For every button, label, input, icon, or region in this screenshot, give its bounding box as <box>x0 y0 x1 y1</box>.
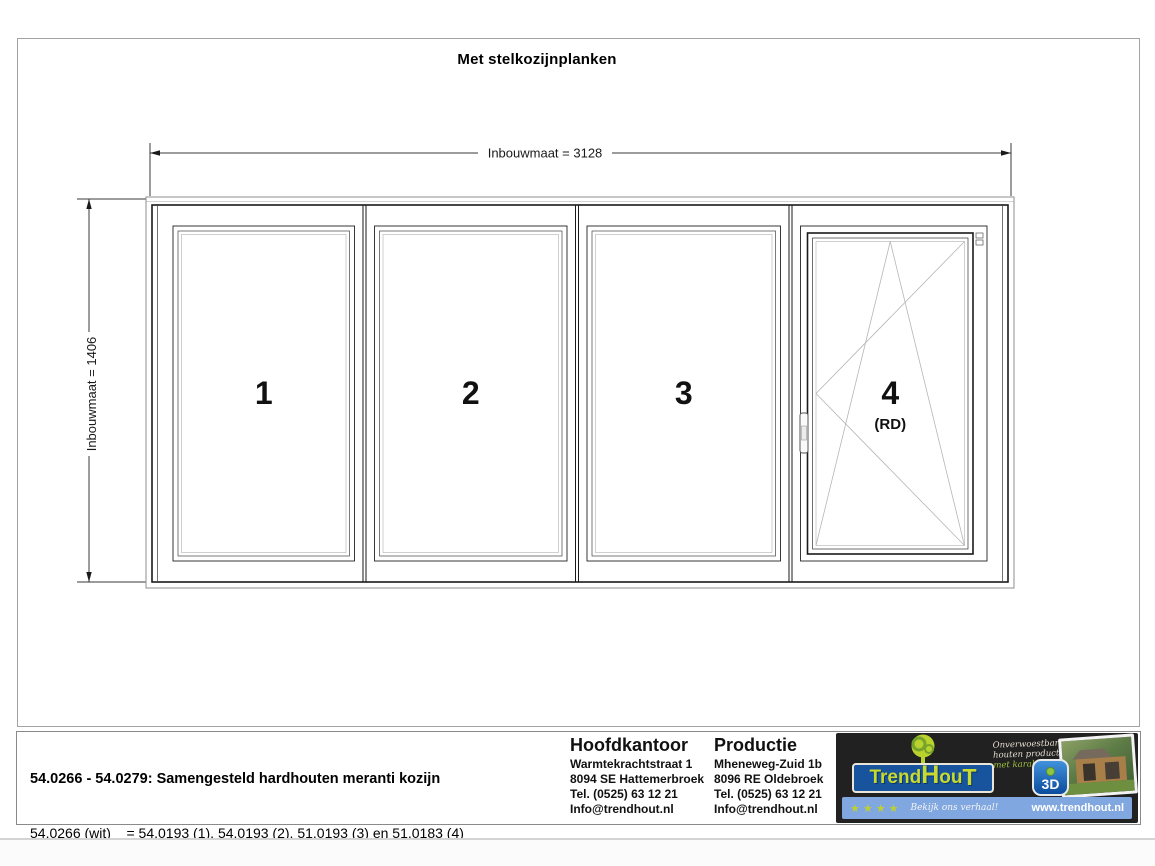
productie-email: Info@trendhout.nl <box>714 802 823 817</box>
below-page-area <box>0 840 1155 866</box>
hoofdkantoor-street: Warmtekrachtstraat 1 <box>570 757 704 772</box>
logo-text-ou: ou <box>939 767 962 789</box>
hoofdkantoor-title: Hoofdkantoor <box>570 735 704 756</box>
dimension-width-label: Inbouwmaat = 3128 <box>488 146 603 161</box>
panel-2-number: 2 <box>462 375 480 411</box>
brand-bottom-bar: ★★★★ Bekijk ons verhaal! www.trendhout.n… <box>842 797 1132 819</box>
dimension-height-label: Inbouwmaat = 1406 <box>84 337 99 452</box>
window-frame-drawing: Inbouwmaat = 3128 Inbouwmaat = 1406 <box>0 0 1155 720</box>
badge-tree-icon <box>1046 767 1055 776</box>
hoofdkantoor-block: Hoofdkantoor Warmtekrachtstraat 1 8094 S… <box>570 735 704 817</box>
logo-text-h: H <box>921 761 939 790</box>
hoofdkantoor-city: 8094 SE Hattemerbroek <box>570 772 704 787</box>
productie-block: Productie Mheneweg-Zuid 1b 8096 RE Oldeb… <box>714 735 823 817</box>
cabin-grass <box>1064 780 1135 796</box>
hoofdkantoor-phone: Tel. (0525) 63 12 21 <box>570 787 704 802</box>
trendhout-brand-panel: TrendHouT Onverwoestbare houten producte… <box>836 733 1138 823</box>
3d-configurator-badge: 3D <box>1032 759 1069 796</box>
cta-text: Bekijk ons verhaal! <box>910 803 998 813</box>
main-frame <box>152 205 1008 582</box>
website-url: www.trendhout.nl <box>1032 802 1124 814</box>
product-title: 54.0266 - 54.0279: Samengesteld hardhout… <box>30 770 473 788</box>
rating-stars-icon: ★★★★ <box>850 802 901 815</box>
panel-1-number: 1 <box>255 375 273 411</box>
badge-3d-label: 3D <box>1042 776 1060 792</box>
cabin-opening-left <box>1083 763 1096 781</box>
logo-text-trend: Trend <box>869 767 921 789</box>
dimension-lines <box>77 143 1011 582</box>
hinge-mark-top <box>976 233 983 238</box>
dimension-arrowheads <box>86 150 1011 582</box>
logo-text-t: T <box>962 764 976 791</box>
hinge-mark-bottom <box>976 240 983 245</box>
trendhout-logo: TrendHouT <box>852 763 994 793</box>
drawing-sheet: Met stelkozijnplanken Inbouwmaat = 3128 … <box>0 0 1155 866</box>
panel-4-number: 4 <box>881 375 899 411</box>
window-handle-grip <box>802 426 807 440</box>
cabin-opening-right <box>1105 762 1120 780</box>
productie-phone: Tel. (0525) 63 12 21 <box>714 787 823 802</box>
panel-4-mode-label: (RD) <box>874 416 906 433</box>
cabin-photo <box>1058 733 1138 798</box>
productie-city: 8096 RE Oldebroek <box>714 772 823 787</box>
productie-street: Mheneweg-Zuid 1b <box>714 757 823 772</box>
panel-3-number: 3 <box>675 375 693 411</box>
productie-title: Productie <box>714 735 823 756</box>
hoofdkantoor-email: Info@trendhout.nl <box>570 802 704 817</box>
